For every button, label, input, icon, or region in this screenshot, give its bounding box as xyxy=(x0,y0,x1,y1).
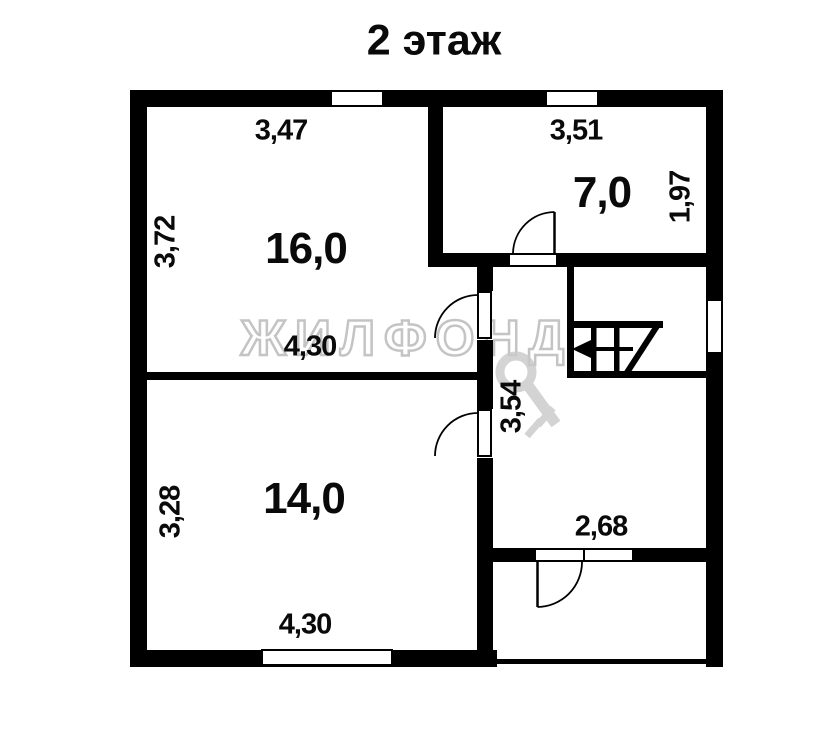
stair-direction-arrow xyxy=(572,340,633,358)
door-balcony-icon xyxy=(538,562,583,607)
area-room16: 16,0 xyxy=(265,224,347,274)
door-opening-room7 xyxy=(508,253,558,267)
stairs-icon xyxy=(574,321,663,374)
wall-hall-middle xyxy=(477,340,493,409)
wall-stair-bottom xyxy=(567,371,707,378)
wall-room16-room14 xyxy=(147,372,477,380)
wall-hall-lower xyxy=(477,458,493,660)
floor-title: 2 этаж xyxy=(367,17,502,66)
wall-balcony-bottom xyxy=(493,659,711,664)
dim-room14-height-left: 3,28 xyxy=(155,486,188,538)
window-room7-top xyxy=(545,90,599,107)
wall-outer-right xyxy=(706,90,723,667)
area-room14: 14,0 xyxy=(263,474,345,524)
wall-room16-room7 xyxy=(428,107,443,267)
door-leaf-room16 xyxy=(477,291,492,339)
wall-balcony-top-right xyxy=(634,548,707,562)
wall-outer-left xyxy=(130,90,147,667)
dim-room7-height-right: 1,97 xyxy=(665,171,698,223)
dim-hall-depth: 3,54 xyxy=(496,381,529,433)
door-room7-icon xyxy=(513,212,555,253)
wall-stair-left xyxy=(567,267,574,378)
window-room16-top xyxy=(330,90,384,107)
dim-room14-width-bottom: 4,30 xyxy=(279,609,331,642)
wall-room7-bottom-left xyxy=(428,253,508,267)
wall-outer-top xyxy=(130,90,723,107)
dim-room16-width-bottom: 4,30 xyxy=(284,331,336,364)
wall-hall-upper xyxy=(477,267,493,291)
wall-room7-bottom-right xyxy=(558,253,707,267)
door-leaf-room14 xyxy=(477,409,492,457)
door-room14-icon xyxy=(435,413,478,456)
dim-balcony-width: 2,68 xyxy=(575,511,627,544)
window-stair-right xyxy=(706,299,723,354)
wall-balcony-top-left xyxy=(493,548,534,562)
dim-room16-height-left: 3,72 xyxy=(150,216,183,268)
door-jamb-balcony xyxy=(583,548,585,562)
area-room7: 7,0 xyxy=(573,168,631,218)
dim-room7-width-top: 3,51 xyxy=(550,115,602,148)
floor-plan: ЖИЛФОНД 2 этаж xyxy=(0,0,837,729)
dim-room16-width-top: 3,47 xyxy=(255,115,307,148)
window-room14-bottom xyxy=(261,649,393,666)
